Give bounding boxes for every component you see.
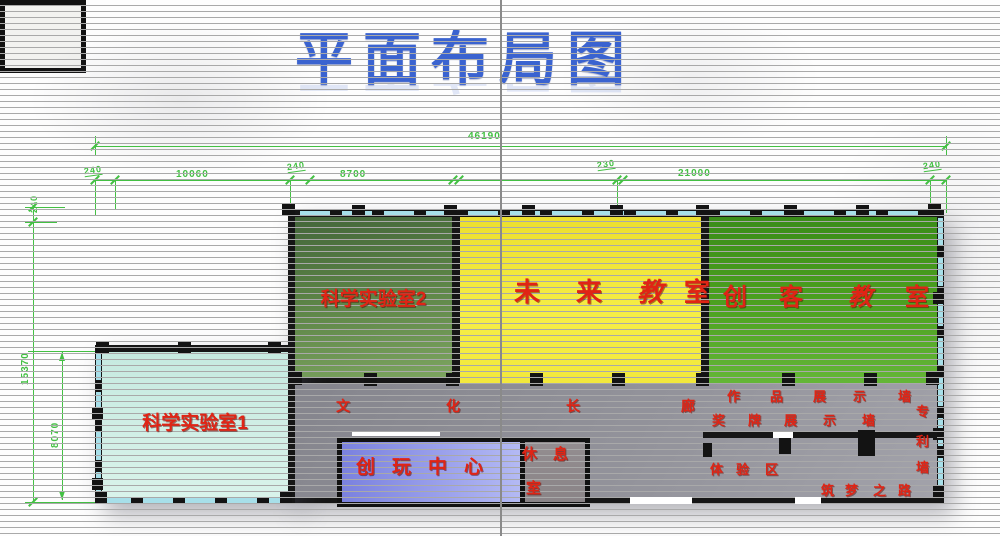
inner-wall — [703, 432, 937, 438]
door-opening — [795, 497, 821, 504]
label-rest-room-line1: 休息 — [522, 443, 584, 464]
label-medal-wall-char: 牌 — [748, 410, 761, 429]
label-medal-wall-char: 展 — [784, 410, 797, 429]
label-dream-road-char: 路 — [898, 480, 911, 499]
label-medal-wall-char: 墙 — [862, 410, 875, 429]
label-dream-road-char: 梦 — [845, 480, 858, 499]
label-hall-char: 文 — [336, 396, 350, 416]
label-works-wall-char: 品 — [770, 386, 783, 405]
label-dream-road-char: 筑 — [821, 480, 834, 499]
label-experience-char: 区 — [765, 459, 778, 478]
door-block — [858, 430, 875, 456]
label-science-lab-2: 科学实验室2 — [295, 284, 452, 311]
staircase — [0, 0, 86, 73]
label-works-wall-char: 示 — [853, 386, 866, 405]
label-works-wall-char: 展 — [813, 386, 826, 405]
label-patent-wall-char: 墙 — [916, 457, 929, 476]
floor-plan-page: 平面布局图 平面布局图 46190 240 10060 240 8700 230… — [0, 0, 1000, 536]
label-future-char: 室 — [684, 272, 710, 309]
label-experience-char: 体 — [710, 459, 723, 478]
label-works-wall-char: 作 — [727, 386, 740, 405]
stair-divider — [500, 0, 502, 536]
door-opening — [630, 497, 692, 504]
label-experience-char: 验 — [736, 459, 749, 478]
column — [703, 443, 712, 457]
label-science-lab-1: 科学实验室1 — [102, 408, 288, 435]
label-patent-wall-char: 专 — [916, 401, 929, 420]
label-patent-wall-char: 利 — [916, 431, 929, 450]
label-works-wall-char: 墙 — [898, 386, 911, 405]
label-hall-char: 廊 — [681, 396, 695, 416]
label-future-char: 未 — [514, 272, 540, 309]
label-future-char: 来 — [576, 272, 602, 309]
label-medal-wall-char: 示 — [823, 410, 836, 429]
label-future-char: 教 — [637, 272, 663, 309]
label-rest-room-line2: 室 — [526, 477, 541, 498]
label-hall-char: 化 — [446, 396, 460, 416]
label-maker-char: 教 — [848, 277, 872, 312]
label-dream-road-char: 之 — [873, 480, 886, 499]
label-hall-char: 长 — [566, 396, 580, 416]
label-play-center: 创玩中心 — [356, 452, 500, 479]
label-maker-char: 创 — [723, 277, 747, 312]
label-maker-char: 室 — [905, 277, 929, 312]
door-leaf — [779, 438, 791, 454]
label-maker-char: 客 — [779, 277, 803, 312]
label-medal-wall-char: 奖 — [712, 410, 725, 429]
